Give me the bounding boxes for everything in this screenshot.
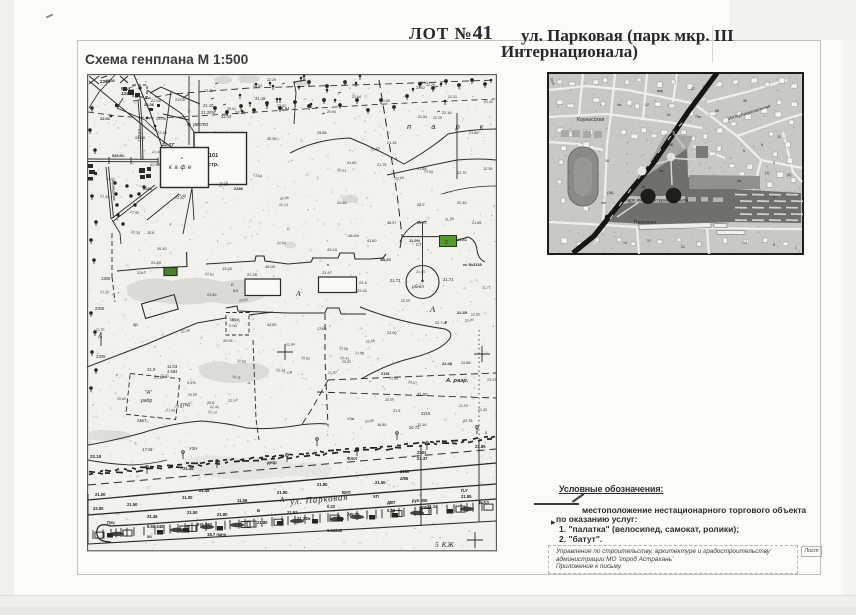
svg-text:21.53: 21.53 [253,84,262,88]
svg-text:22.81: 22.81 [205,272,214,277]
svg-text:21.45: 21.45 [416,270,425,274]
svg-text:21.45: 21.45 [147,514,158,519]
svg-text:9: 9 [773,161,775,165]
svg-text:13.00: 13.00 [387,331,397,335]
svg-text:21.4: 21.4 [359,280,368,285]
svg-text:ВУП: ВУП [342,490,350,495]
svg-text:21.85: 21.85 [461,494,472,499]
svg-text:20.82: 20.82 [301,356,310,361]
svg-text:23.32: 23.32 [204,89,213,93]
svg-text:22.19: 22.19 [90,454,102,459]
svg-text:(1): (1) [765,171,769,175]
svg-text:мкр: мкр [657,89,663,93]
svg-text:38.97: 38.97 [387,221,397,225]
svg-text:23.43: 23.43 [487,378,496,382]
svg-text:С: С [287,227,290,231]
svg-text:8.50 240: 8.50 240 [147,524,164,529]
svg-text:22.41: 22.41 [340,356,349,361]
svg-text:ль: ль [659,169,663,173]
svg-text:90: 90 [743,99,747,103]
svg-text:20.94: 20.94 [327,110,336,114]
svg-text:9: 9 [773,243,775,247]
svg-text:21.18: 21.18 [255,96,266,101]
svg-text:(2): (2) [787,173,791,177]
svg-text:6.34345: 6.34345 [327,528,343,533]
svg-text:А: А [279,496,285,504]
svg-text:21.50: 21.50 [127,502,138,507]
svg-text:5 КЖ: 5 КЖ [435,540,455,549]
svg-text:21.09: 21.09 [166,408,175,413]
svg-text:ор: ор [133,322,138,327]
svg-text:А. раэр.: А. раэр. [445,378,469,384]
svg-text:руп 300: руп 300 [412,498,428,503]
svg-text:18.80: 18.80 [377,423,387,427]
svg-text:22.68: 22.68 [337,201,347,205]
svg-text:21.72: 21.72 [482,285,491,290]
svg-text:13: 13 [743,241,747,245]
svg-text:2302: 2302 [106,78,116,83]
svg-text:22.89: 22.89 [207,293,217,297]
svg-text:124 а: 124 а [121,91,133,96]
svg-text:Б: Б [231,282,234,287]
svg-text:21.87: 21.87 [328,371,337,375]
svg-text:21.00: 21.00 [182,495,193,500]
svg-text:А: А [295,289,301,298]
svg-text:21.00: 21.00 [95,492,106,497]
svg-text:25.88: 25.88 [317,131,327,135]
svg-text:-17.91-: -17.91- [141,447,155,452]
svg-text:21.71: 21.71 [443,277,454,282]
svg-text:Каунасская: Каунасская [577,117,605,123]
svg-text:ХП: ХП [373,494,379,499]
svg-text:7а: 7а [641,185,645,189]
svg-text:20.91: 20.91 [223,338,234,343]
svg-text:21.75: 21.75 [417,221,427,225]
svg-text:21.59: 21.59 [355,351,364,356]
svg-text:21.95: 21.95 [475,444,486,449]
svg-text:20.10: 20.10 [157,247,167,251]
svg-text:22.40: 22.40 [157,130,168,135]
svg-text:21.80: 21.80 [217,512,228,517]
svg-text:нет: нет [601,201,607,205]
svg-text:21.80: 21.80 [317,482,328,487]
svg-text:21.43: 21.43 [484,100,493,104]
svg-text:21.64: 21.64 [352,95,361,99]
svg-text:22.05: 22.05 [478,408,487,412]
svg-text:22.48: 22.48 [442,361,453,366]
svg-text:"А": "А" [145,390,152,396]
svg-text:Пхч: Пхч [107,520,115,525]
svg-text:10: 10 [605,159,609,163]
svg-text:5: 5 [743,149,745,153]
svg-text:21.97: 21.97 [322,270,333,275]
svg-text:УЗН: УЗН [189,446,198,451]
svg-text:17: 17 [647,239,651,243]
svg-text:21.20%: 21.20% [201,110,215,115]
svg-text:21.5: 21.5 [393,409,400,413]
svg-text:45.00: 45.00 [265,264,276,269]
svg-text:21.54: 21.54 [418,115,427,119]
svg-text:20.60: 20.60 [117,397,126,401]
svg-text:стр.: стр. [208,162,219,168]
svg-text:51: 51 [667,113,671,117]
svg-text:22.26: 22.26 [247,272,258,277]
svg-text:44.50: 44.50 [267,323,277,327]
svg-text:21.75: 21.75 [377,163,387,167]
svg-text:11: 11 [777,135,781,139]
svg-text:21.53: 21.53 [459,404,468,408]
svg-text:18.7 пано: 18.7 пано [207,532,227,537]
svg-text:2180: 2180 [400,469,410,474]
svg-text:23.11: 23.11 [232,375,241,380]
svg-text:21.50: 21.50 [187,510,198,515]
svg-text:12: 12 [645,103,649,107]
svg-text:98: 98 [715,109,719,113]
svg-text:43.10: 43.10 [327,247,338,252]
svg-text:22.82: 22.82 [237,359,246,364]
svg-text:5а: 5а [737,179,741,183]
svg-text:(18): (18) [607,191,613,195]
svg-text:23.02: 23.02 [416,86,425,90]
svg-text:21.60: 21.60 [417,392,428,397]
svg-text:22.45: 22.45 [210,405,219,409]
svg-text:2216: 2216 [421,411,431,416]
svg-text:21.71: 21.71 [390,278,401,283]
svg-text:Флот: Флот [347,456,358,461]
svg-text:к: к [181,155,183,160]
svg-text:17.00: 17.00 [317,327,327,331]
svg-text:ДВТ: ДВТ [387,500,396,505]
svg-text:21.37: 21.37 [417,456,428,461]
svg-text:20.82: 20.82 [342,360,351,364]
svg-text:22.28: 22.28 [135,135,146,140]
svg-text:22.14: 22.14 [228,398,237,403]
svg-text:21.94: 21.94 [286,342,295,347]
svg-text:41.80: 41.80 [367,239,377,243]
svg-text:2: 2 [445,240,448,246]
svg-text:23.00: 23.00 [175,97,186,102]
svg-text:22.12: 22.12 [208,410,217,415]
svg-text:7: 7 [795,247,797,251]
svg-text:13.00: 13.00 [222,266,233,271]
svg-text:22.35: 22.35 [457,310,468,315]
svg-text:-48.4%: -48.4% [347,234,360,238]
svg-text:22.31: 22.31 [448,95,457,99]
svg-text:м. ресто: м. ресто [187,122,208,128]
svg-text:радр: радр [140,398,152,404]
svg-text:22.01: 22.01 [100,116,111,121]
svg-text:-с-: -с- [247,381,252,385]
svg-text:22.29: 22.29 [426,83,435,87]
svg-text:в: в [327,263,329,267]
svg-text:22.34: 22.34 [277,241,286,245]
svg-text:20.6: 20.6 [147,231,154,235]
svg-text:21.85: 21.85 [472,221,482,225]
svg-text:А: А [97,332,103,340]
svg-text:21.61: 21.61 [457,237,468,242]
svg-text:21.48: 21.48 [199,488,210,493]
svg-text:07: 07 [691,87,695,91]
svg-text:хч: хч [147,534,152,539]
svg-text:12.16: 12.16 [417,423,427,427]
svg-text:22.88: 22.88 [461,361,471,365]
svg-text:2.04: 2.04 [229,323,238,328]
svg-text:22х7: 22х7 [136,270,146,275]
svg-text:22.06: 22.06 [156,116,167,121]
svg-text:20.91: 20.91 [227,107,236,111]
svg-text:кафе: кафе [169,165,194,171]
svg-text:21.10: 21.10 [203,103,214,108]
svg-text:21.52: 21.52 [287,510,298,515]
svg-text:2305: 2305 [95,306,105,311]
svg-text:22.7 м: 22.7 м [435,321,446,325]
svg-text:11.55: 11.55 [237,498,248,503]
svg-text:2246: 2246 [143,186,153,191]
svg-text:20.59: 20.59 [385,398,394,402]
svg-text:21: 21 [681,245,685,249]
svg-text:Б: Б [257,508,260,513]
svg-text:22.50: 22.50 [401,299,410,303]
svg-text:21.40: 21.40 [152,150,161,154]
svg-text:22.45: 22.45 [457,201,467,205]
svg-text:21.80: 21.80 [257,520,268,525]
svg-text:12.39: 12.39 [483,167,493,171]
svg-text:ес №3135: ес №3135 [463,262,483,267]
svg-text:22.70: 22.70 [457,171,467,175]
svg-text:101: 101 [209,153,218,159]
svg-text:23.02: 23.02 [277,104,286,108]
svg-text:21.25: 21.25 [100,290,109,294]
svg-text:2/85: 2/85 [400,476,409,481]
svg-text:14: 14 [623,241,627,245]
svg-text:22.60: 22.60 [93,506,104,511]
svg-text:21.0-: 21.0- [147,367,157,372]
svg-text:21.51: 21.51 [96,327,105,332]
svg-text:П.У: П.У [461,488,468,493]
svg-text:79а: 79а [695,115,701,119]
svg-text:4: 4 [773,195,775,199]
svg-text:6: 6 [761,143,763,147]
svg-text:СР: СР [287,371,293,375]
svg-text:22.41: 22.41 [357,288,368,293]
svg-text:21.50: 21.50 [375,480,386,485]
svg-text:рбнт: рбнт [411,284,424,290]
svg-text:А: А [429,304,436,314]
svg-text:41.80: 41.80 [347,161,357,165]
svg-text:21.90: 21.90 [277,490,288,495]
svg-text:20.6: 20.6 [207,401,214,405]
svg-text:22.00: 22.00 [471,313,480,317]
svg-text:1306: 1306 [101,276,111,281]
svg-text:21.66: 21.66 [469,131,479,135]
svg-text:22.27: 22.27 [161,142,174,148]
svg-text:21.15: 21.15 [387,141,397,145]
svg-text:4а: 4а [617,103,621,107]
svg-text:22.16: 22.16 [442,111,452,115]
svg-text:22.89: 22.89 [151,260,162,265]
svg-text:20.50: 20.50 [188,393,197,397]
svg-text:0.22: 0.22 [327,504,336,509]
svg-text:СТ: СТ [416,242,422,247]
svg-text:22.29: 22.29 [433,116,442,120]
svg-text:22.36: 22.36 [267,137,277,141]
svg-text:0.2%: 0.2% [187,381,196,385]
svg-text:2286: 2286 [234,186,244,191]
svg-text:529.50-: 529.50- [112,154,126,158]
svg-text:22.78: 22.78 [463,419,473,423]
svg-text:22.14: 22.14 [221,114,232,119]
svg-text:28.0: 28.0 [417,203,424,207]
svg-text:КЛ: КЛ [233,288,238,293]
svg-text:2305: 2305 [96,354,106,359]
svg-text:22.55: 22.55 [150,162,161,167]
svg-text:21.48: 21.48 [183,466,194,471]
svg-text:22.36: 22.36 [235,110,246,115]
svg-text:36Б: 36Б [667,143,674,147]
svg-text:22.13: 22.13 [279,203,288,207]
svg-text:дезр: дезр [267,460,277,465]
svg-text:2167: 2167 [137,418,147,423]
svg-text:22.00: 22.00 [151,98,162,103]
svg-text:22.29: 22.29 [267,78,276,82]
svg-text:2161: 2161 [417,450,427,455]
svg-text:21.68: 21.68 [417,167,427,171]
svg-text:УЗм: УЗм [347,417,355,421]
svg-text:23.31: 23.31 [160,374,169,378]
